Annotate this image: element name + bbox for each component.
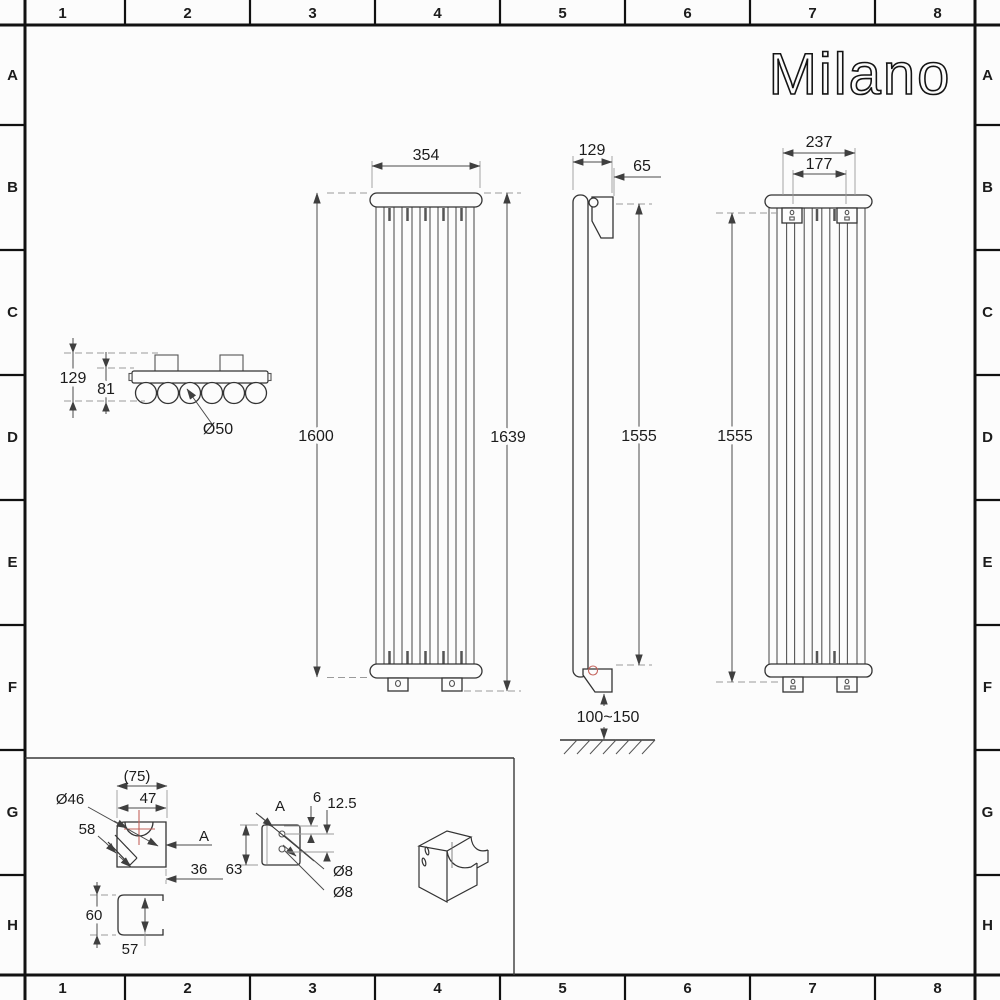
dim-text-cross-tube-offset: 81 <box>97 381 115 398</box>
grid-col-label: 2 <box>183 980 191 997</box>
dim-text-u-inner-height: 57 <box>122 941 139 958</box>
dim-text-tube-diameter: Ø50 <box>203 421 233 438</box>
grid-col-label: 3 <box>308 980 316 997</box>
dim-u-outer-height: 60 <box>86 882 116 948</box>
floor-line <box>560 740 655 754</box>
grid-col-label: 5 <box>558 5 566 22</box>
dim-floor-clearance: 100~150 <box>577 694 640 739</box>
header-collector-top-view <box>132 371 268 383</box>
collector-end-nub <box>129 374 132 381</box>
grid-col-label: 6 <box>683 5 691 22</box>
dim-text-hole-diameter-top: Ø8 <box>333 863 353 880</box>
radiator-side-profile <box>573 195 588 677</box>
dim-text-cross-depth: 129 <box>60 370 87 387</box>
top-header-bar-back <box>765 195 872 208</box>
grid-row-label: F <box>8 679 17 696</box>
back-view: 237 177 1555 <box>716 134 872 692</box>
milano-logo: Milano <box>769 42 952 107</box>
dim-text-saddle-diameter: Ø46 <box>56 791 84 808</box>
radiator-columns-back <box>769 207 865 667</box>
dim-text-bracket-width: 47 <box>140 790 157 807</box>
grid-row-label: B <box>982 179 993 196</box>
iso-slot <box>421 858 426 867</box>
drawing-sheet: 1 2 3 4 5 6 7 8 1 2 3 4 5 6 7 8 A B C D … <box>0 0 1000 1000</box>
dim-side-depth: 129 <box>573 142 612 193</box>
section-a-view-label: A <box>275 798 285 815</box>
dim-text-back-bracket-span: 1555 <box>717 428 753 445</box>
section-a-label: A <box>199 828 209 845</box>
grid-row-label: E <box>7 554 17 571</box>
grid-row-label: D <box>7 429 18 446</box>
side-view: 129 65 1555 100~150 <box>560 142 661 754</box>
grid-row-label: A <box>982 67 993 84</box>
dim-text-slot-length: 58 <box>79 821 96 838</box>
grid-row-label: F <box>983 679 992 696</box>
grid-row-label: G <box>7 804 19 821</box>
grid-col-label: 7 <box>808 980 816 997</box>
dim-bracket-depth: 36 <box>166 861 223 884</box>
tube-sections <box>136 383 267 404</box>
floor-hatching <box>564 740 655 754</box>
bottom-header-bar <box>370 664 482 678</box>
dim-text-hole-spacing: 12.5 <box>327 795 356 812</box>
grid-ticks <box>0 0 1000 1000</box>
front-view: 354 1600 1639 <box>298 147 526 691</box>
grid-col-label: 6 <box>683 980 691 997</box>
grid-row-label: H <box>982 917 993 934</box>
grid-col-label: 4 <box>433 5 442 22</box>
dim-side-bracket-span: 1555 <box>616 204 657 665</box>
radiator-columns <box>376 206 474 666</box>
foot-slot <box>450 681 455 687</box>
grid-row-label: A <box>7 67 18 84</box>
dim-text-back-outer-width: 237 <box>806 134 833 151</box>
dim-text-section-height: 63 <box>226 861 243 878</box>
dim-text-front-height: 1600 <box>298 428 334 445</box>
grid-row-label: B <box>7 179 18 196</box>
grid-row-label: G <box>982 804 994 821</box>
grid-col-label: 4 <box>433 980 442 997</box>
collector-end-nub <box>268 374 271 381</box>
top-header-bar <box>370 193 482 207</box>
grid-col-label: 7 <box>808 5 816 22</box>
dim-text-u-outer-height: 60 <box>86 907 103 924</box>
dim-front-width: 354 <box>372 147 480 188</box>
dim-hole-spacing: 12.5 <box>286 795 357 862</box>
border-frame: 1 2 3 4 5 6 7 8 1 2 3 4 5 6 7 8 A B C D … <box>0 0 1000 1000</box>
dim-text-side-bracket-span: 1555 <box>621 428 657 445</box>
dim-text-floor-clearance: 100~150 <box>577 709 640 726</box>
grid-row-label: C <box>7 304 18 321</box>
u-channel-outline <box>118 895 163 935</box>
dim-text-front-overall-height: 1639 <box>490 429 526 446</box>
grid-row-label: C <box>982 304 993 321</box>
top-bracket-pin <box>589 198 598 207</box>
bracket-profile-detail: (75) 47 Ø46 58 A <box>56 768 223 884</box>
feet-brackets <box>388 678 462 691</box>
dim-text-hole-diameter-bottom: Ø8 <box>333 884 353 901</box>
grid-col-label: 8 <box>933 980 941 997</box>
dim-front-height: 1600 <box>298 193 368 678</box>
dim-text-bracket-overall-width: (75) <box>124 768 151 785</box>
bottom-header-bar-back <box>765 664 872 677</box>
grid-row-label: H <box>7 917 18 934</box>
wall-bracket-top-view <box>220 355 243 372</box>
foot-slot <box>396 681 401 687</box>
section-a-callout: A <box>166 828 212 845</box>
grid-col-label: 2 <box>183 5 191 22</box>
dim-text-back-center-width: 177 <box>806 156 833 173</box>
u-channel-detail: 57 60 <box>86 882 163 958</box>
grid-row-label: E <box>982 554 992 571</box>
dim-hole-inset: 6 <box>284 789 321 843</box>
dim-text-hole-inset: 6 <box>313 789 321 806</box>
section-a-detail: A 63 6 12.5 <box>226 789 357 901</box>
grid-col-label: 1 <box>58 980 66 997</box>
grid-row-label: D <box>982 429 993 446</box>
grid-col-label: 5 <box>558 980 566 997</box>
cross-section-view: 129 81 Ø50 <box>60 338 271 438</box>
technical-drawing: 1 2 3 4 5 6 7 8 1 2 3 4 5 6 7 8 A B C D … <box>0 0 1000 1000</box>
wall-bracket-top-view <box>155 355 178 372</box>
detail-box: (75) 47 Ø46 58 A <box>25 758 514 975</box>
dim-section-height: 63 <box>226 825 258 878</box>
dim-u-inner-height: 57 <box>122 898 145 958</box>
bracket-isometric-view <box>419 831 488 902</box>
dim-cross-tube-offset: 81 <box>97 352 134 414</box>
dim-text-front-width: 354 <box>413 147 440 164</box>
grid-col-label: 1 <box>58 5 66 22</box>
dim-side-bracket-offset: 65 <box>614 158 661 196</box>
dim-bracket-width: 47 <box>118 790 166 808</box>
hole-bottom <box>279 846 285 852</box>
grid-col-label: 3 <box>308 5 316 22</box>
grid-col-label: 8 <box>933 5 941 22</box>
dim-text-bracket-depth: 36 <box>191 861 208 878</box>
dim-text-side-bracket-offset: 65 <box>633 158 651 175</box>
dim-text-side-depth: 129 <box>579 142 606 159</box>
